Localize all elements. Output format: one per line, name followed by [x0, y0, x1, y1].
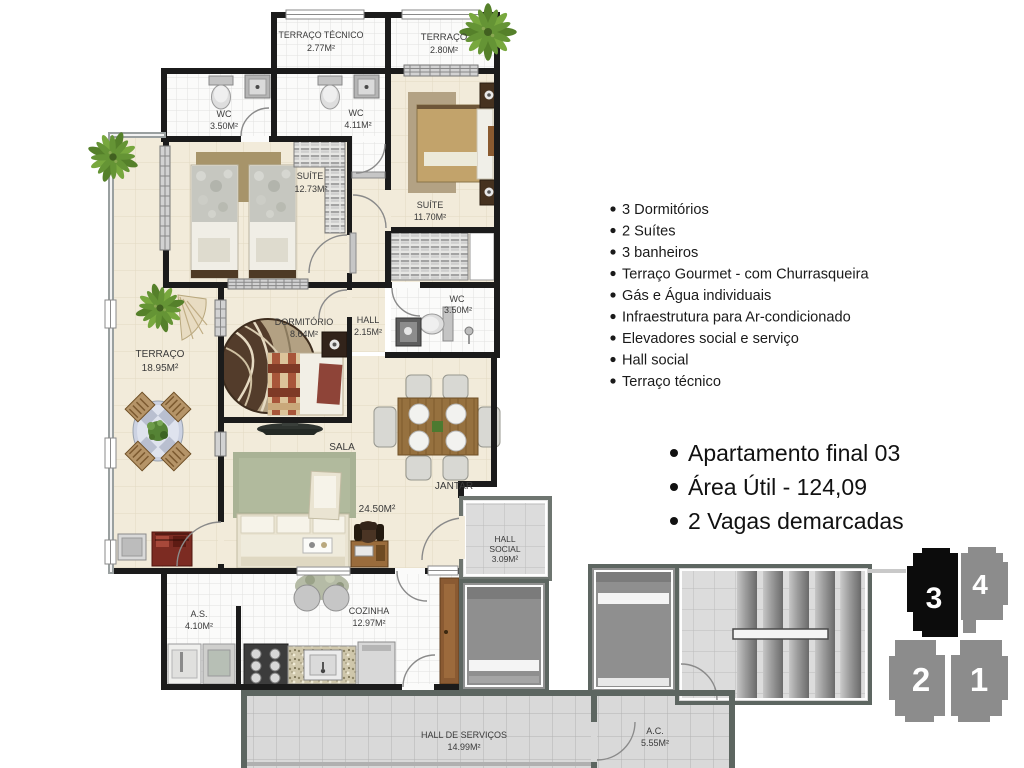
svg-text:18.95M²: 18.95M²: [142, 363, 179, 374]
svg-text:2: 2: [912, 661, 930, 698]
svg-text:A.S.: A.S.: [190, 609, 207, 619]
svg-text:WC: WC: [349, 108, 364, 118]
svg-text:JANTAR: JANTAR: [435, 481, 473, 492]
svg-text:Infraestrutura para Ar-condici: Infraestrutura para Ar-condicionado: [622, 310, 851, 326]
svg-text:TERRAÇO: TERRAÇO: [421, 32, 467, 43]
svg-text:3 Dormitórios: 3 Dormitórios: [622, 202, 709, 218]
svg-text:11.70M²: 11.70M²: [414, 212, 446, 222]
svg-text:DORMITÓRIO: DORMITÓRIO: [275, 317, 334, 327]
svg-text:3.50M²: 3.50M²: [444, 305, 472, 315]
svg-text:Terraço Gourmet - com Churrasq: Terraço Gourmet - com Churrasqueira: [622, 267, 869, 283]
svg-text:Elevadores social e serviço: Elevadores social e serviço: [622, 331, 799, 347]
svg-text:14.99M²: 14.99M²: [447, 742, 480, 752]
svg-text:8.64M²: 8.64M²: [290, 329, 318, 339]
svg-text:12.97M²: 12.97M²: [352, 618, 385, 628]
svg-text:HALL: HALL: [494, 534, 516, 544]
svg-text:Área Útil - 124,09: Área Útil - 124,09: [688, 474, 867, 500]
svg-text:TERRAÇO: TERRAÇO: [136, 349, 185, 360]
svg-text:COZINHA: COZINHA: [349, 606, 390, 616]
svg-text:SUÍTE: SUÍTE: [417, 200, 444, 210]
svg-text:3 banheiros: 3 banheiros: [622, 245, 698, 261]
svg-text:24.50M²: 24.50M²: [359, 504, 396, 515]
svg-text:4: 4: [972, 569, 988, 600]
svg-text:2.77M²: 2.77M²: [307, 43, 335, 53]
svg-text:Terraço técnico: Terraço técnico: [622, 374, 721, 390]
svg-text:2.15M²: 2.15M²: [354, 327, 382, 337]
svg-text:WC: WC: [450, 294, 465, 304]
svg-text:1: 1: [970, 661, 988, 698]
svg-text:3.50M²: 3.50M²: [210, 121, 238, 131]
svg-text:Gás e Água individuais: Gás e Água individuais: [622, 287, 771, 304]
svg-text:5.55M²: 5.55M²: [641, 738, 669, 748]
svg-text:SOCIAL: SOCIAL: [489, 544, 520, 554]
svg-text:TERRAÇO TÉCNICO: TERRAÇO TÉCNICO: [279, 30, 364, 40]
svg-text:3.09M²: 3.09M²: [492, 554, 519, 564]
svg-text:HALL: HALL: [357, 315, 380, 325]
svg-text:HALL DE SERVIÇOS: HALL DE SERVIÇOS: [421, 730, 507, 740]
svg-text:WC: WC: [217, 109, 232, 119]
svg-text:2 Vagas demarcadas: 2 Vagas demarcadas: [688, 508, 904, 534]
svg-text:4.10M²: 4.10M²: [185, 621, 213, 631]
svg-text:4.11M²: 4.11M²: [344, 120, 371, 130]
svg-text:2 Suítes: 2 Suítes: [622, 224, 676, 240]
svg-text:Hall social: Hall social: [622, 353, 689, 369]
svg-text:Apartamento final 03: Apartamento final 03: [688, 440, 900, 466]
svg-text:A.C.: A.C.: [646, 726, 664, 736]
svg-text:3: 3: [926, 582, 943, 615]
svg-text:SALA: SALA: [329, 442, 355, 453]
svg-text:12.73M²: 12.73M²: [294, 184, 327, 194]
svg-text:2.80M²: 2.80M²: [430, 45, 458, 55]
svg-text:SUÍTE: SUÍTE: [297, 171, 324, 181]
